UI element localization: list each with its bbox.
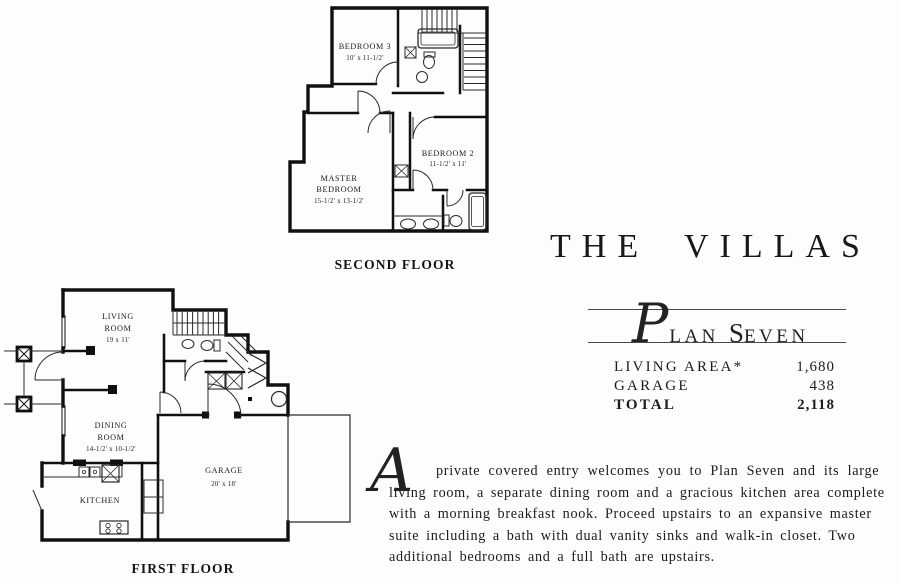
living-room-label-line1: LIVING <box>102 312 134 321</box>
stat-value: 438 <box>810 377 836 396</box>
description-line: suite including a bath with dual vanity … <box>389 526 900 548</box>
first-floor-walls <box>42 290 288 540</box>
master-bedroom-label-line1: MASTER <box>321 174 358 183</box>
master-bedroom-label-line2: BEDROOM <box>316 185 361 194</box>
living-room-dims: 19 x 11' <box>106 337 130 344</box>
kitchen-label: KITCHEN <box>80 496 120 505</box>
first-floor-plan: LIVING ROOM 19 x 11' DINING ROOM 14-1/2'… <box>2 286 358 558</box>
page-title: THE VILLAS <box>550 228 900 266</box>
first-floor-doors <box>33 352 241 511</box>
bedroom2-label: BEDROOM 2 <box>422 149 474 158</box>
plan-word-rest: LAN <box>669 326 719 347</box>
stat-row-living-area: LIVING AREA* 1,680 <box>614 358 835 377</box>
master-bedroom-dims: 15-1/2' x 13-1/2' <box>314 198 364 205</box>
description-line: with a morning breakfast nook. Proceed u… <box>389 504 900 526</box>
stat-row-garage: GARAGE 438 <box>614 377 835 396</box>
entry-porch <box>4 347 63 411</box>
second-floor-stairs <box>418 9 487 90</box>
first-floor-room-labels: LIVING ROOM 19 x 11' DINING ROOM 14-1/2'… <box>80 312 243 505</box>
second-floor-plan: BEDROOM 3 10' x 11-1/2' BEDROOM 2 11-1/2… <box>281 0 493 245</box>
first-floor-stairs <box>173 312 226 335</box>
bedroom3-label: BEDROOM 3 <box>339 42 391 51</box>
dining-room-dims: 14-1/2' x 10-1/2' <box>86 446 136 453</box>
stat-label: TOTAL <box>614 396 676 415</box>
drop-cap-initial: A <box>370 436 413 506</box>
seven-initial-letter: S <box>729 318 744 348</box>
garage-dims: 20' x 18' <box>211 481 237 488</box>
stat-label: LIVING AREA* <box>614 358 743 377</box>
description-line: additional bedrooms and a full bath are … <box>389 547 900 569</box>
dining-room-label-line1: DINING <box>95 421 128 430</box>
description-lines: private covered entry welcomes you to Pl… <box>372 442 900 569</box>
plan-seven-heading: PLANSEVEN <box>588 297 846 349</box>
area-stats-table: LIVING AREA* 1,680 GARAGE 438 TOTAL 2,11… <box>614 358 835 414</box>
seven-word-rest: EVEN <box>744 326 809 347</box>
first-floor-caption: FIRST FLOOR <box>88 561 278 577</box>
bedroom3-dims: 10' x 11-1/2' <box>346 55 383 62</box>
second-floor-caption: SECOND FLOOR <box>300 257 490 273</box>
bedroom2-dims: 11-1/2' x 11' <box>429 161 466 168</box>
stat-label: GARAGE <box>614 377 690 396</box>
plan-initial-letter: P <box>632 292 668 355</box>
description-line: private covered entry welcomes you to Pl… <box>436 461 900 483</box>
dining-room-label-line2: ROOM <box>98 433 125 442</box>
stat-value: 2,118 <box>797 396 835 415</box>
stat-row-total: TOTAL 2,118 <box>614 396 835 415</box>
entry-hatch <box>226 335 266 388</box>
living-room-label-line2: ROOM <box>105 324 132 333</box>
garage-label: GARAGE <box>205 466 243 475</box>
stat-value: 1,680 <box>796 358 835 377</box>
plan-seven-text: PLANSEVEN <box>632 292 809 355</box>
brochure-page: BEDROOM 3 10' x 11-1/2' BEDROOM 2 11-1/2… <box>0 0 900 583</box>
plan-description: A private covered entry welcomes you to … <box>372 442 900 569</box>
description-line: living room, a separate dining room and … <box>389 483 900 505</box>
second-floor-fixtures <box>393 29 486 230</box>
